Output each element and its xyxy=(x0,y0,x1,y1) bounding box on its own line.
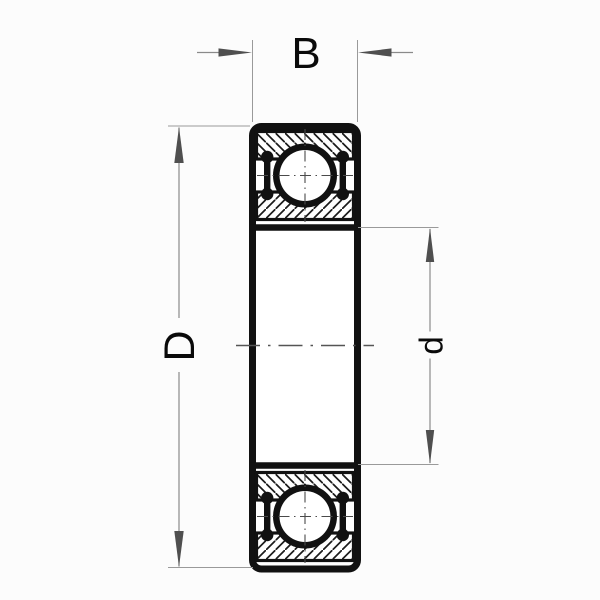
cage-left-bottom-rivet xyxy=(261,188,273,200)
cage-right-bottom-rivet xyxy=(337,188,349,200)
bearing-diagram-page: B D d xyxy=(0,0,600,600)
bearing-diagram: B D d xyxy=(0,0,600,600)
bearing-cross-section xyxy=(250,127,360,570)
dimension-b-label: B xyxy=(291,29,320,78)
dimension-d-bore-label: d xyxy=(413,336,450,354)
dimension-d-outer-label: D xyxy=(156,330,204,361)
cage-right-top-rivet xyxy=(337,151,349,163)
cage-left-top-rivet xyxy=(261,151,273,163)
